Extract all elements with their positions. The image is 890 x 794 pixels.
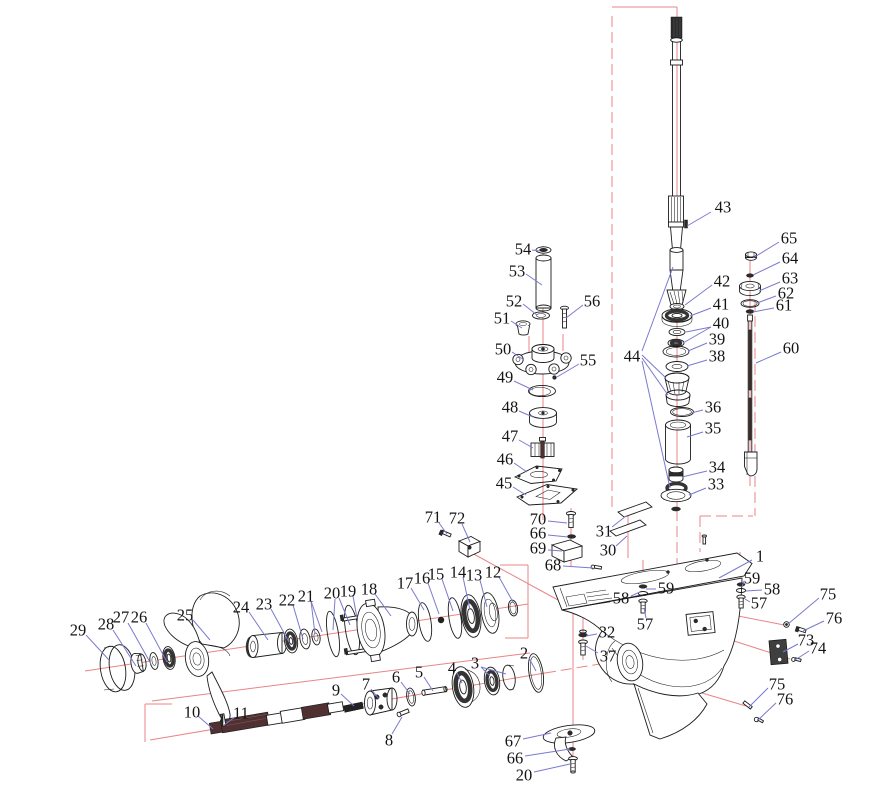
part-label-3: 3 xyxy=(471,654,479,673)
part-label-35: 35 xyxy=(705,419,722,438)
part-label-19: 19 xyxy=(340,582,357,601)
part-label-53: 53 xyxy=(509,262,526,281)
part-label-65: 65 xyxy=(781,229,798,248)
part-label-54: 54 xyxy=(515,240,532,259)
part-label-6: 6 xyxy=(392,668,400,687)
part-11-pin xyxy=(222,715,224,726)
part-label-56: 56 xyxy=(584,292,601,311)
part-label-8: 8 xyxy=(385,731,393,750)
part-label-76: 76 xyxy=(826,609,843,628)
part-label-75: 75 xyxy=(820,585,837,604)
part-label-37: 37 xyxy=(600,647,617,666)
part-label-33: 33 xyxy=(708,475,725,494)
part-label-71: 71 xyxy=(425,508,442,527)
part-label-13: 13 xyxy=(466,566,483,585)
part-label-43: 43 xyxy=(715,198,732,217)
part-label-4: 4 xyxy=(448,659,456,678)
part-label-1: 1 xyxy=(756,547,764,566)
part-label-27: 27 xyxy=(113,608,130,627)
diagram-canvas: 4354535251565055494847464565646362616042… xyxy=(0,0,890,794)
part-label-26: 26 xyxy=(131,608,148,627)
exploded-parts-diagram: 4354535251565055494847464565646362616042… xyxy=(0,0,890,794)
part-label-42: 42 xyxy=(714,272,731,291)
part-label-10: 10 xyxy=(184,703,201,722)
part-24-thrust-hub xyxy=(248,633,287,658)
part-label-48: 48 xyxy=(502,398,519,417)
part-label-21: 21 xyxy=(298,587,315,606)
background xyxy=(0,0,890,794)
part-label-7: 7 xyxy=(362,675,370,694)
part-label-32: 32 xyxy=(599,623,616,642)
part-label-9: 9 xyxy=(332,681,340,700)
part-label-58: 58 xyxy=(613,589,630,608)
part-label-2: 2 xyxy=(520,644,528,663)
part-label-46: 46 xyxy=(497,450,514,469)
part-label-12: 12 xyxy=(485,563,502,582)
part-label-74: 74 xyxy=(810,639,827,658)
part-label-20: 20 xyxy=(324,584,341,603)
part-label-31: 31 xyxy=(596,522,613,541)
part-label-50: 50 xyxy=(495,340,512,359)
part-label-14: 14 xyxy=(450,563,467,582)
part-label-51: 51 xyxy=(494,309,511,328)
part-label-22: 22 xyxy=(279,591,296,610)
part-label-20: 20 xyxy=(516,766,533,785)
part-label-57: 57 xyxy=(751,594,768,613)
part-label-49: 49 xyxy=(497,368,514,387)
part-label-72: 72 xyxy=(449,509,466,528)
part-label-60: 60 xyxy=(783,339,800,358)
part-label-64: 64 xyxy=(782,249,799,268)
part-label-59: 59 xyxy=(658,579,675,598)
part-label-29: 29 xyxy=(70,621,87,640)
part-label-24: 24 xyxy=(233,598,250,617)
part-label-25: 25 xyxy=(177,606,194,625)
part-label-36: 36 xyxy=(705,398,722,417)
part-label-30: 30 xyxy=(600,541,617,560)
part-label-59: 59 xyxy=(744,569,761,588)
part-label-44: 44 xyxy=(624,347,641,366)
part-label-47: 47 xyxy=(502,427,519,446)
part-16-ball xyxy=(438,617,444,623)
part-label-38: 38 xyxy=(709,347,726,366)
part-label-68: 68 xyxy=(545,556,562,575)
part-label-15: 15 xyxy=(428,565,445,584)
part-label-61: 61 xyxy=(776,296,793,315)
part-label-55: 55 xyxy=(580,351,597,370)
part-label-18: 18 xyxy=(361,580,378,599)
part-label-5: 5 xyxy=(415,663,423,682)
part-label-45: 45 xyxy=(496,474,513,493)
part-label-57: 57 xyxy=(637,615,654,634)
part-label-76: 76 xyxy=(777,690,794,709)
part-label-11: 11 xyxy=(233,704,249,723)
part-label-41: 41 xyxy=(713,295,730,314)
part-label-17: 17 xyxy=(397,574,414,593)
part-label-23: 23 xyxy=(256,595,273,614)
